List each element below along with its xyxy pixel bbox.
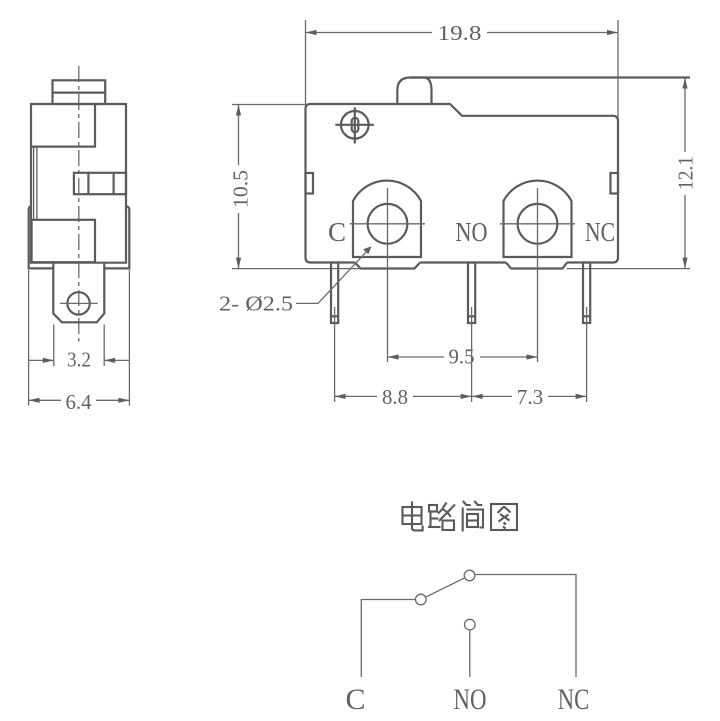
svg-text:7.3: 7.3 (517, 385, 544, 409)
svg-text:9.5: 9.5 (449, 345, 475, 369)
svg-text:NC: NC (558, 683, 590, 716)
svg-text:NO: NO (454, 683, 487, 716)
svg-text:12.1: 12.1 (674, 156, 698, 190)
svg-text:2- Ø2.5: 2- Ø2.5 (219, 292, 293, 316)
svg-text:6.4: 6.4 (66, 390, 92, 414)
svg-text:8.8: 8.8 (382, 385, 408, 409)
svg-text:NO: NO (456, 217, 488, 247)
svg-text:3.2: 3.2 (67, 348, 91, 372)
svg-text:10.5: 10.5 (229, 170, 253, 208)
svg-text:C: C (345, 683, 365, 716)
svg-text:19.8: 19.8 (438, 21, 482, 45)
svg-text:NC: NC (585, 217, 615, 247)
svg-text:C: C (328, 217, 346, 247)
